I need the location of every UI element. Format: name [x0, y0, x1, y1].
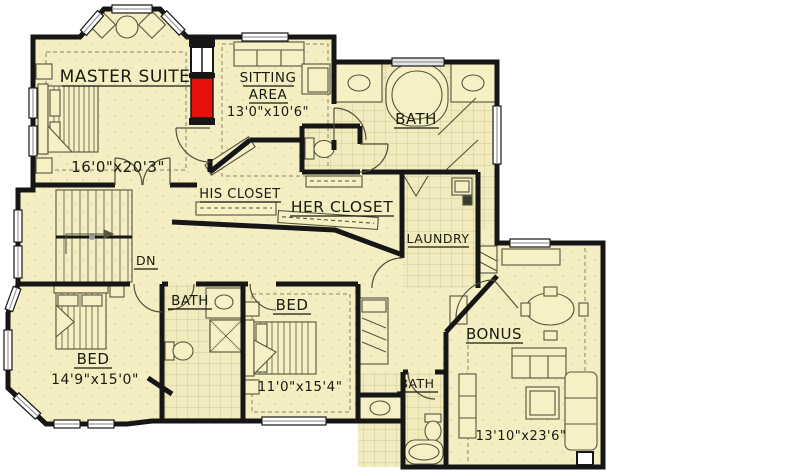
- toilet: [305, 138, 314, 159]
- label-his-closet: HIS CLOSET: [199, 187, 281, 202]
- dims-bed-left: 14'9"x15'0": [51, 372, 139, 388]
- nightstand: [36, 158, 52, 173]
- chaise: [565, 372, 597, 450]
- label-hall-bath: BATH: [171, 293, 209, 309]
- label-her-closet: HER CLOSET: [291, 198, 393, 216]
- label-bonus: BONUS: [466, 325, 522, 343]
- label-master-suite: MASTER SUITE: [60, 67, 191, 87]
- label-sitting: SITTING: [240, 70, 297, 86]
- nightstand: [245, 302, 259, 316]
- nightstand: [36, 64, 52, 79]
- floor-plan-page: MASTER SUITE 16'0"x20'3" SITTING AREA 13…: [0, 0, 800, 476]
- label-bed-left: BED: [77, 350, 110, 368]
- label-lower-bath: BATH: [399, 376, 434, 391]
- label-sitting-area: AREA: [249, 87, 288, 103]
- sofa: [512, 348, 566, 378]
- label-stairs-dn: DN: [136, 253, 156, 268]
- label-bed-mid: BED: [276, 296, 309, 314]
- floor-plan: MASTER SUITE 16'0"x20'3" SITTING AREA 13…: [0, 0, 800, 476]
- shower-drain: [463, 196, 472, 205]
- label-master-bath: BATH: [395, 110, 437, 128]
- dining-table: [526, 293, 574, 325]
- dims-bonus: 13'10"x23'6": [476, 429, 567, 444]
- label-laundry: LAUNDRY: [407, 231, 470, 246]
- fireplace-firebox: [191, 78, 213, 118]
- console: [459, 374, 476, 438]
- corner-window: [577, 452, 593, 465]
- dims-sitting: 13'0"x10'6": [227, 105, 309, 120]
- dims-master-suite: 16'0"x20'3": [71, 158, 165, 176]
- fireplace: [189, 37, 215, 125]
- dims-bed-mid: 11'0"x15'4": [258, 379, 343, 395]
- ottoman: [526, 387, 559, 419]
